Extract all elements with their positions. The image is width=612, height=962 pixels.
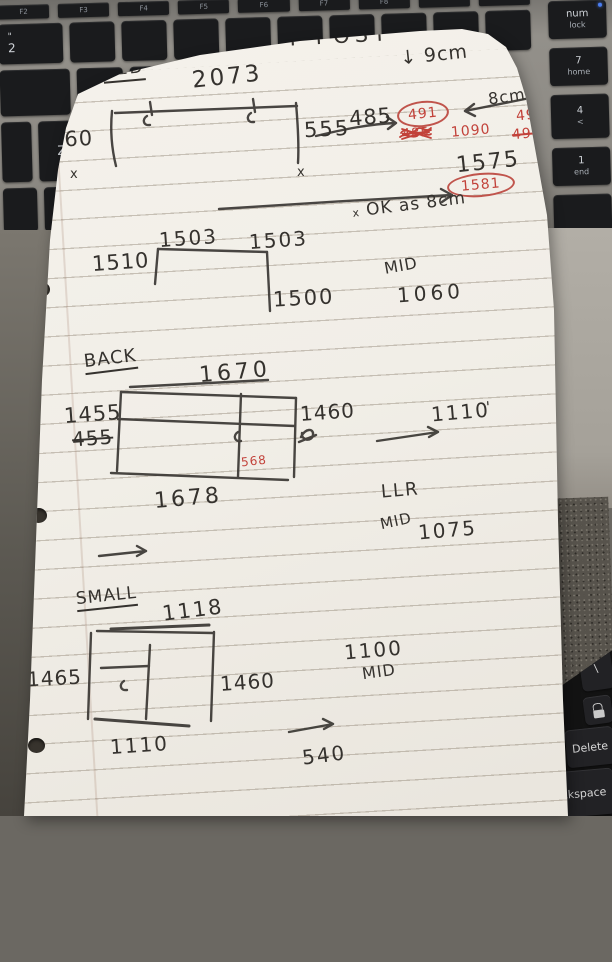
bed-x-mark-left: x: [70, 167, 79, 182]
small-dim-left: 1465: [26, 665, 82, 692]
small-dim-bottom: 1110: [109, 731, 169, 759]
mattress-dim-top-b: 1503: [248, 226, 308, 254]
small-value-1100: 1100: [343, 635, 404, 664]
mattress-dim-top-a: 1503: [158, 224, 218, 252]
small-dim-right: 1460: [219, 668, 275, 696]
ok-note-x-mark: x: [352, 206, 361, 220]
margin-line: [52, 76, 106, 955]
note-title: T POST: [285, 21, 391, 50]
bed-red-492-struck: 492: [511, 125, 542, 144]
back-llr-label: LLR: [380, 478, 420, 502]
back-note-1110: 1110: [430, 397, 491, 426]
punch-hole: [30, 508, 47, 523]
bed-dim-left: 560: [49, 126, 93, 152]
back-red-568: 568: [240, 453, 267, 470]
punch-hole: [33, 282, 50, 297]
back-mid-value: 1075: [417, 515, 478, 544]
punch-hole: [28, 738, 45, 753]
paper-shadow: T POST ↓ 9cm BED 2073 560 555 x x 485 49…: [0, 0, 612, 816]
mattress-mid-value: 1060: [396, 279, 464, 308]
bed-dim-right: 555: [303, 116, 350, 142]
bed-red-485-struck: 485: [402, 125, 431, 142]
back-dim-left-struck: 455: [71, 425, 114, 452]
bed-x-mark-right: x: [297, 165, 306, 180]
bed-dim-485: 485: [348, 103, 393, 131]
bed-section-label: BED: [102, 57, 145, 84]
notebook-page: T POST ↓ 9cm BED 2073 560 555 x x 485 49…: [0, 0, 612, 816]
punch-hole: [36, 82, 53, 97]
back-dim-left: 1455: [63, 400, 122, 428]
bed-red-492: 492: [515, 105, 546, 124]
back-dim-right: 1460: [299, 398, 355, 426]
mattress-dim-right: 1500: [272, 284, 335, 311]
mattress-dim-left: 1510: [91, 248, 150, 276]
ruled-lines: [0, 38, 612, 962]
